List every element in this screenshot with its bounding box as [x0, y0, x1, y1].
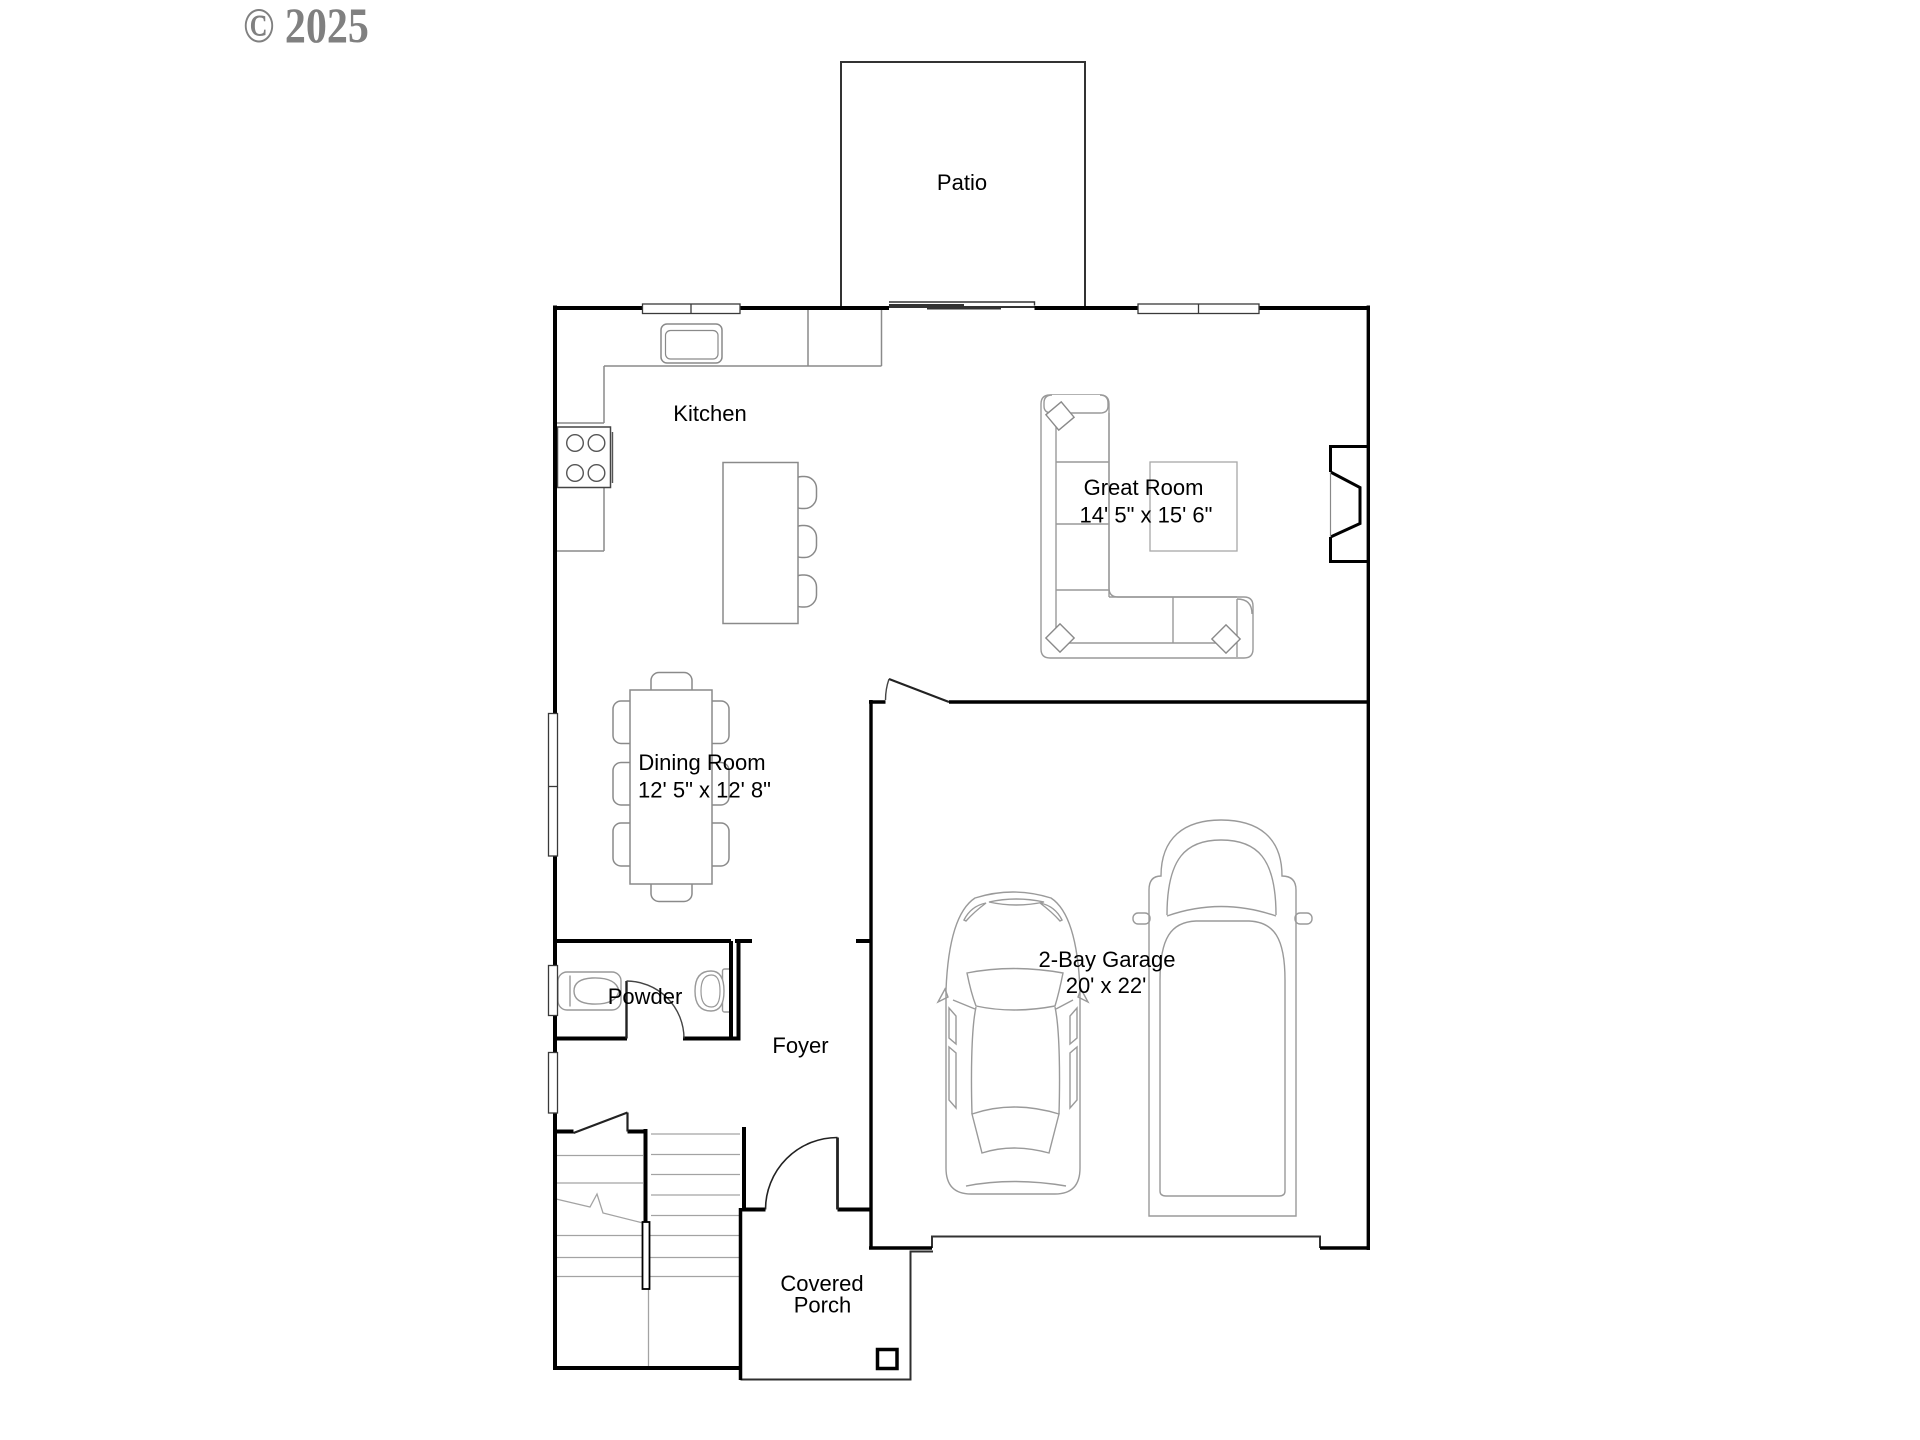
svg-text:Kitchen: Kitchen: [673, 401, 746, 426]
svg-text:Patio: Patio: [937, 170, 987, 195]
svg-text:Porch: Porch: [794, 1293, 851, 1318]
svg-text:© 2025: © 2025: [243, 0, 369, 53]
svg-text:14' 5" x 15' 6": 14' 5" x 15' 6": [1080, 503, 1213, 528]
svg-text:Foyer: Foyer: [772, 1033, 828, 1058]
svg-text:Powder: Powder: [608, 984, 683, 1009]
svg-text:12' 5" x 12' 8": 12' 5" x 12' 8": [638, 778, 771, 803]
svg-text:20' x 22': 20' x 22': [1066, 973, 1147, 998]
svg-text:Great Room: Great Room: [1084, 475, 1204, 500]
svg-text:2-Bay Garage: 2-Bay Garage: [1039, 947, 1176, 972]
svg-text:Dining Room: Dining Room: [638, 750, 765, 775]
